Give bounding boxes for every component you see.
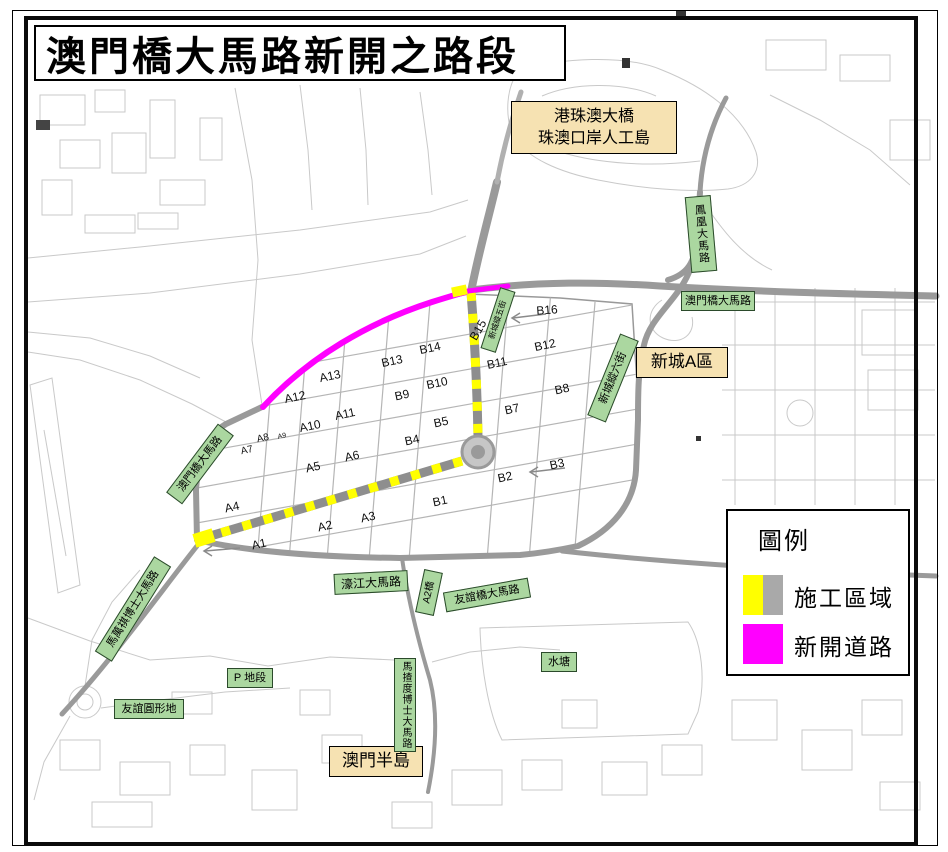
legend-label-new-road: 新開道路 [794,628,894,662]
legend-swatch-construction-gray [763,575,783,615]
legend-label-construction: 施工區域 [794,579,894,613]
map-canvas: 澳門橋大馬路新開之路段 港珠澳大橋 珠澳口岸人工島 新城A區 澳門半島 鳳凰大馬… [0,0,948,852]
block-label-b16: B16 [533,302,562,318]
legend-box: 圖例 施工區域 新開道路 [726,509,910,676]
legend-swatch-construction-yellow [743,575,763,615]
legend-swatch-new-road [743,624,783,664]
legend-swatch-construction [743,575,783,615]
page-title: 澳門橋大馬路新開之路段 [34,25,566,81]
peninsula-text: 澳門半島 [342,750,410,773]
legend-title: 圖例 [758,521,810,556]
road-label-macau-bridge-avenue-east: 澳門橋大馬路 [681,291,755,311]
road-label-hou-kong-avenue: 濠江大馬路 [334,570,409,595]
legend-swatch-new-road-magenta [743,624,763,664]
zone-a-text: 新城A區 [651,351,713,374]
road-label-friendship-roundabout: 友誼圓形地 [114,699,184,719]
hzmb-line2: 珠澳口岸人工島 [538,128,650,150]
area-label-zone-a: 新城A區 [636,347,728,378]
legend-swatch-new-road-magenta2 [763,624,783,664]
area-label-hzmb-island: 港珠澳大橋 珠澳口岸人工島 [511,101,677,154]
map-inner-frame [24,16,918,846]
road-label-p-lot: P 地段 [227,668,273,688]
road-label-reservoir: 水塘 [541,652,577,672]
road-label-machado-avenue: 馬揸度博士大馬路 [394,658,416,752]
hzmb-line1: 港珠澳大橋 [554,106,634,128]
page-title-text: 澳門橋大馬路新開之路段 [46,24,519,82]
